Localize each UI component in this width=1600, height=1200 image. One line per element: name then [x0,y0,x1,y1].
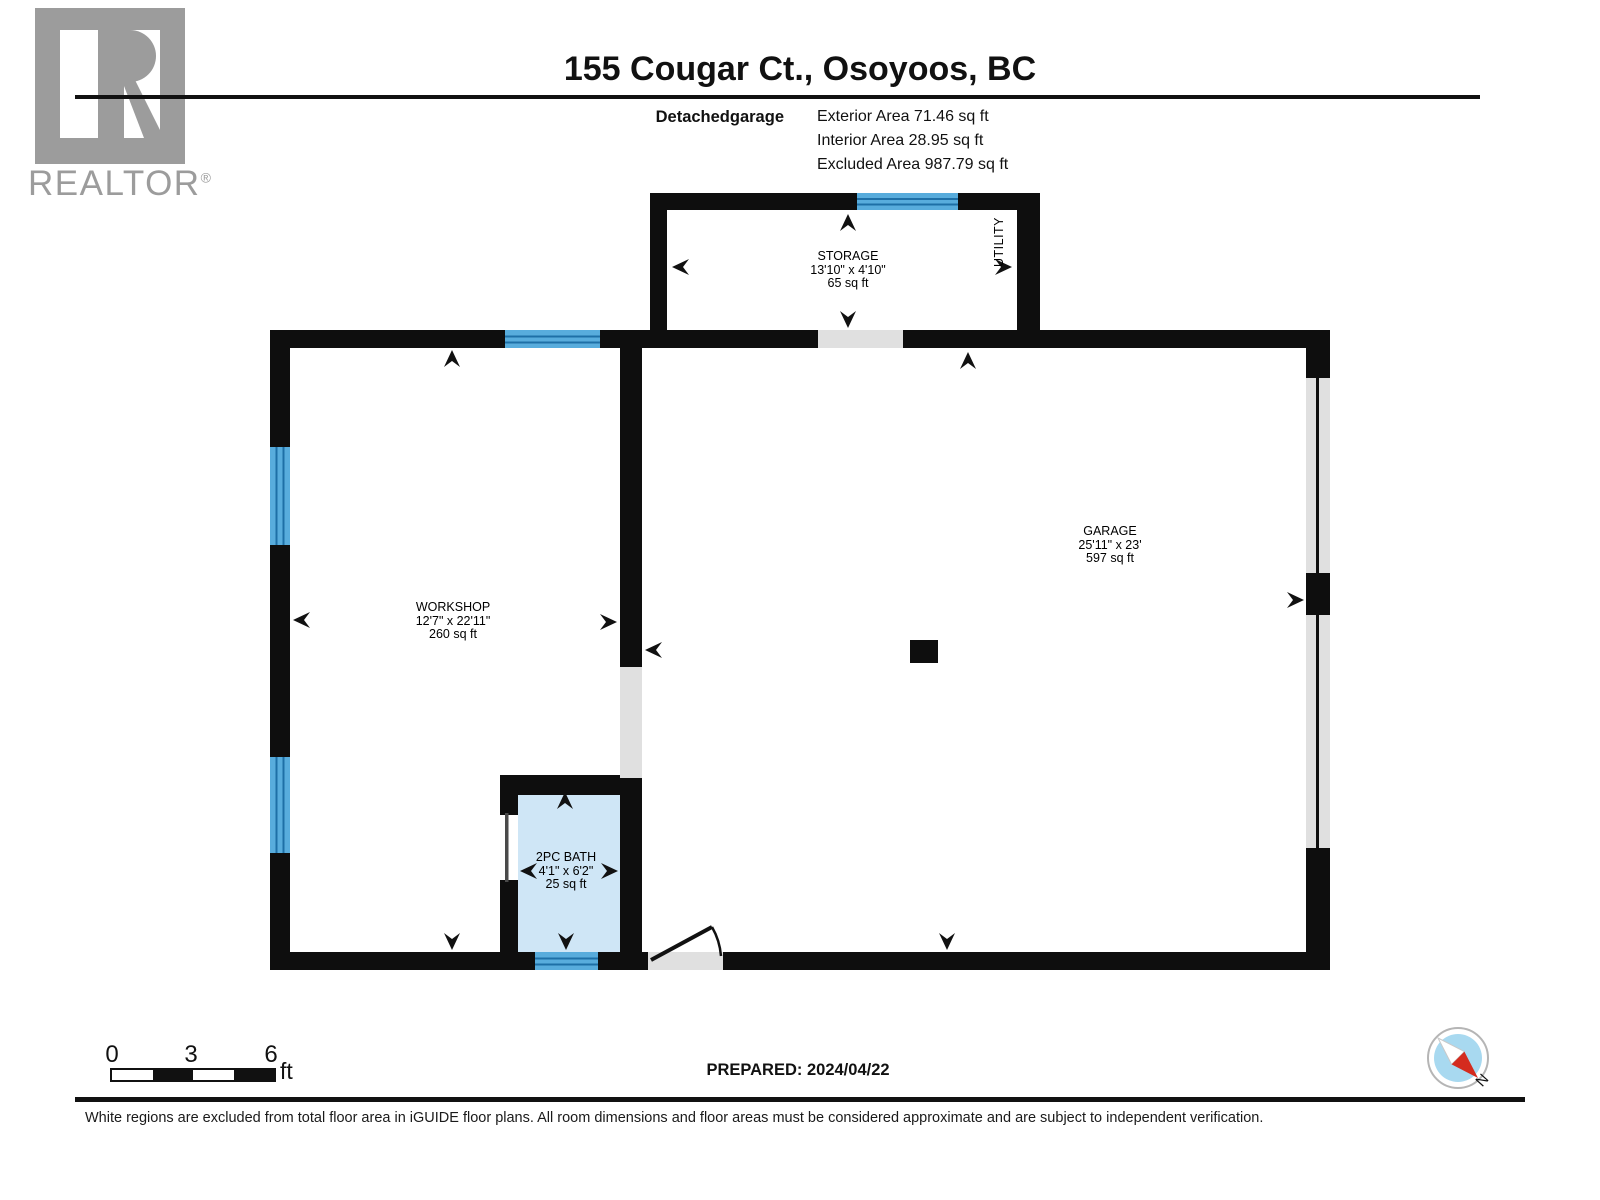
floorplan-canvas [0,0,1600,1200]
bath-door-leaf [505,813,509,882]
page-title: 155 Cougar Ct., Osoyoos, BC [564,50,1036,89]
room-name: WORKSHOP [416,601,491,615]
excluded-area: Excluded Area 987.79 sq ft [817,156,1008,174]
scale-tick-0: 0 [105,1041,118,1069]
prepared-date: PREPARED: 2024/04/22 [706,1061,889,1080]
room-area: 597 sq ft [1078,552,1141,566]
bath-room-label: 2PC BATH 4'1" x 6'2" 25 sq ft [536,851,596,892]
exterior-area: Exterior Area 71.46 sq ft [817,108,989,126]
room-name: 2PC BATH [536,851,596,865]
room-name: GARAGE [1078,525,1141,539]
workshop-room-label: WORKSHOP 12'7" x 22'11" 260 sq ft [416,601,491,642]
room-name: STORAGE [810,250,886,264]
scale-bar [110,1068,276,1082]
room-area: 65 sq ft [810,277,886,291]
floorplan-page: 155 Cougar Ct., Osoyoos, BC Detachedgara… [0,0,1600,1200]
storage-room-label: STORAGE 13'10" x 4'10" 65 sq ft [810,250,886,291]
room-dims: 4'1" x 6'2" [536,864,596,878]
room-area: 25 sq ft [536,878,596,892]
footer-divider [75,1097,1525,1102]
scale-tick-3: 3 [184,1041,197,1069]
post [910,640,938,663]
utility-room-label: UTILITY [992,217,1006,267]
floor-name: Detachedgarage [656,108,800,127]
room-dims: 25'11" x 23' [1078,538,1141,552]
wall-openings [620,330,1330,970]
disclaimer-text: White regions are excluded from total fl… [85,1110,1263,1126]
room-dims: 13'10" x 4'10" [810,263,886,277]
interior-area: Interior Area 28.95 sq ft [817,132,983,150]
scale-unit: ft [280,1058,293,1085]
header-divider [75,95,1480,99]
scale-tick-6: 6 [264,1041,277,1069]
room-dims: 12'7" x 22'11" [416,614,491,628]
dimension-arrows [293,214,1304,950]
realtor-logo-icon [35,8,185,164]
room-area: 260 sq ft [416,628,491,642]
walls [270,193,1330,970]
realtor-wordmark: REALTOR® [28,164,212,204]
garage-room-label: GARAGE 25'11" x 23' 597 sq ft [1078,525,1141,566]
registered-symbol: ® [201,169,213,185]
